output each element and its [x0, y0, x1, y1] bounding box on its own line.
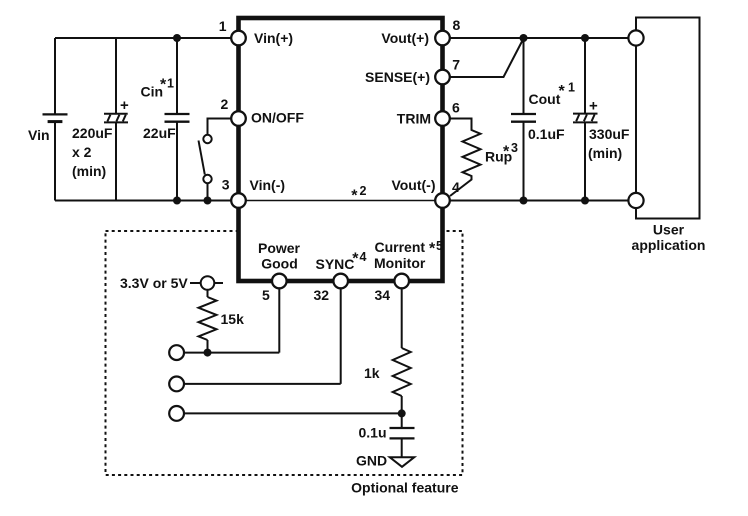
svg-text:15k: 15k: [221, 311, 245, 327]
svg-text:8: 8: [453, 17, 461, 33]
svg-text:TRIM: TRIM: [397, 111, 431, 127]
svg-text:*: *: [429, 241, 436, 258]
svg-text:Current: Current: [375, 239, 426, 255]
svg-text:Optional feature: Optional feature: [351, 480, 459, 496]
svg-text:3: 3: [511, 141, 518, 155]
svg-text:Vin(+): Vin(+): [254, 30, 293, 46]
svg-text:0.1uF: 0.1uF: [528, 126, 565, 142]
svg-text:32: 32: [314, 287, 330, 303]
svg-text:3.3V or 5V: 3.3V or 5V: [120, 275, 188, 291]
svg-text:7: 7: [452, 57, 460, 73]
svg-text:*: *: [559, 83, 566, 100]
svg-text:*: *: [160, 77, 167, 94]
svg-text:Vout(-): Vout(-): [391, 177, 435, 193]
svg-text:(min): (min): [588, 145, 622, 161]
svg-text:3: 3: [222, 176, 230, 192]
svg-text:application: application: [632, 237, 706, 253]
svg-text:GND: GND: [356, 452, 387, 468]
svg-text:Vin(-): Vin(-): [250, 177, 286, 193]
svg-text:Vout(+): Vout(+): [381, 30, 429, 46]
svg-text:5: 5: [436, 239, 443, 253]
svg-text:220uF: 220uF: [72, 125, 113, 141]
svg-text:1k: 1k: [364, 365, 380, 381]
svg-text:6: 6: [452, 100, 460, 116]
svg-text:2: 2: [221, 96, 229, 112]
svg-text:5: 5: [262, 287, 270, 303]
svg-text:SYNC: SYNC: [316, 256, 355, 272]
svg-text:*: *: [351, 187, 358, 204]
svg-text:1: 1: [568, 81, 575, 95]
svg-text:Monitor: Monitor: [374, 255, 426, 271]
svg-text:User: User: [653, 222, 685, 238]
svg-text:*: *: [503, 144, 510, 161]
svg-text:22uF: 22uF: [143, 125, 176, 141]
svg-text:+: +: [589, 98, 598, 115]
svg-text:Power: Power: [258, 240, 301, 256]
svg-text:x 2: x 2: [72, 144, 92, 160]
svg-text:*: *: [352, 251, 359, 268]
svg-text:+: +: [120, 97, 129, 114]
svg-text:(min): (min): [72, 163, 106, 179]
svg-text:0.1u: 0.1u: [359, 425, 387, 441]
svg-text:1: 1: [167, 77, 174, 91]
svg-text:Cout: Cout: [529, 91, 561, 107]
svg-text:4: 4: [360, 250, 367, 264]
svg-text:330uF: 330uF: [589, 126, 630, 142]
svg-text:34: 34: [375, 287, 391, 303]
svg-text:SENSE(+): SENSE(+): [365, 69, 430, 85]
svg-text:Good: Good: [261, 255, 298, 271]
svg-text:2: 2: [360, 184, 367, 198]
svg-text:Vin: Vin: [28, 127, 50, 143]
svg-text:ON/OFF: ON/OFF: [251, 110, 304, 126]
svg-text:1: 1: [219, 18, 227, 34]
